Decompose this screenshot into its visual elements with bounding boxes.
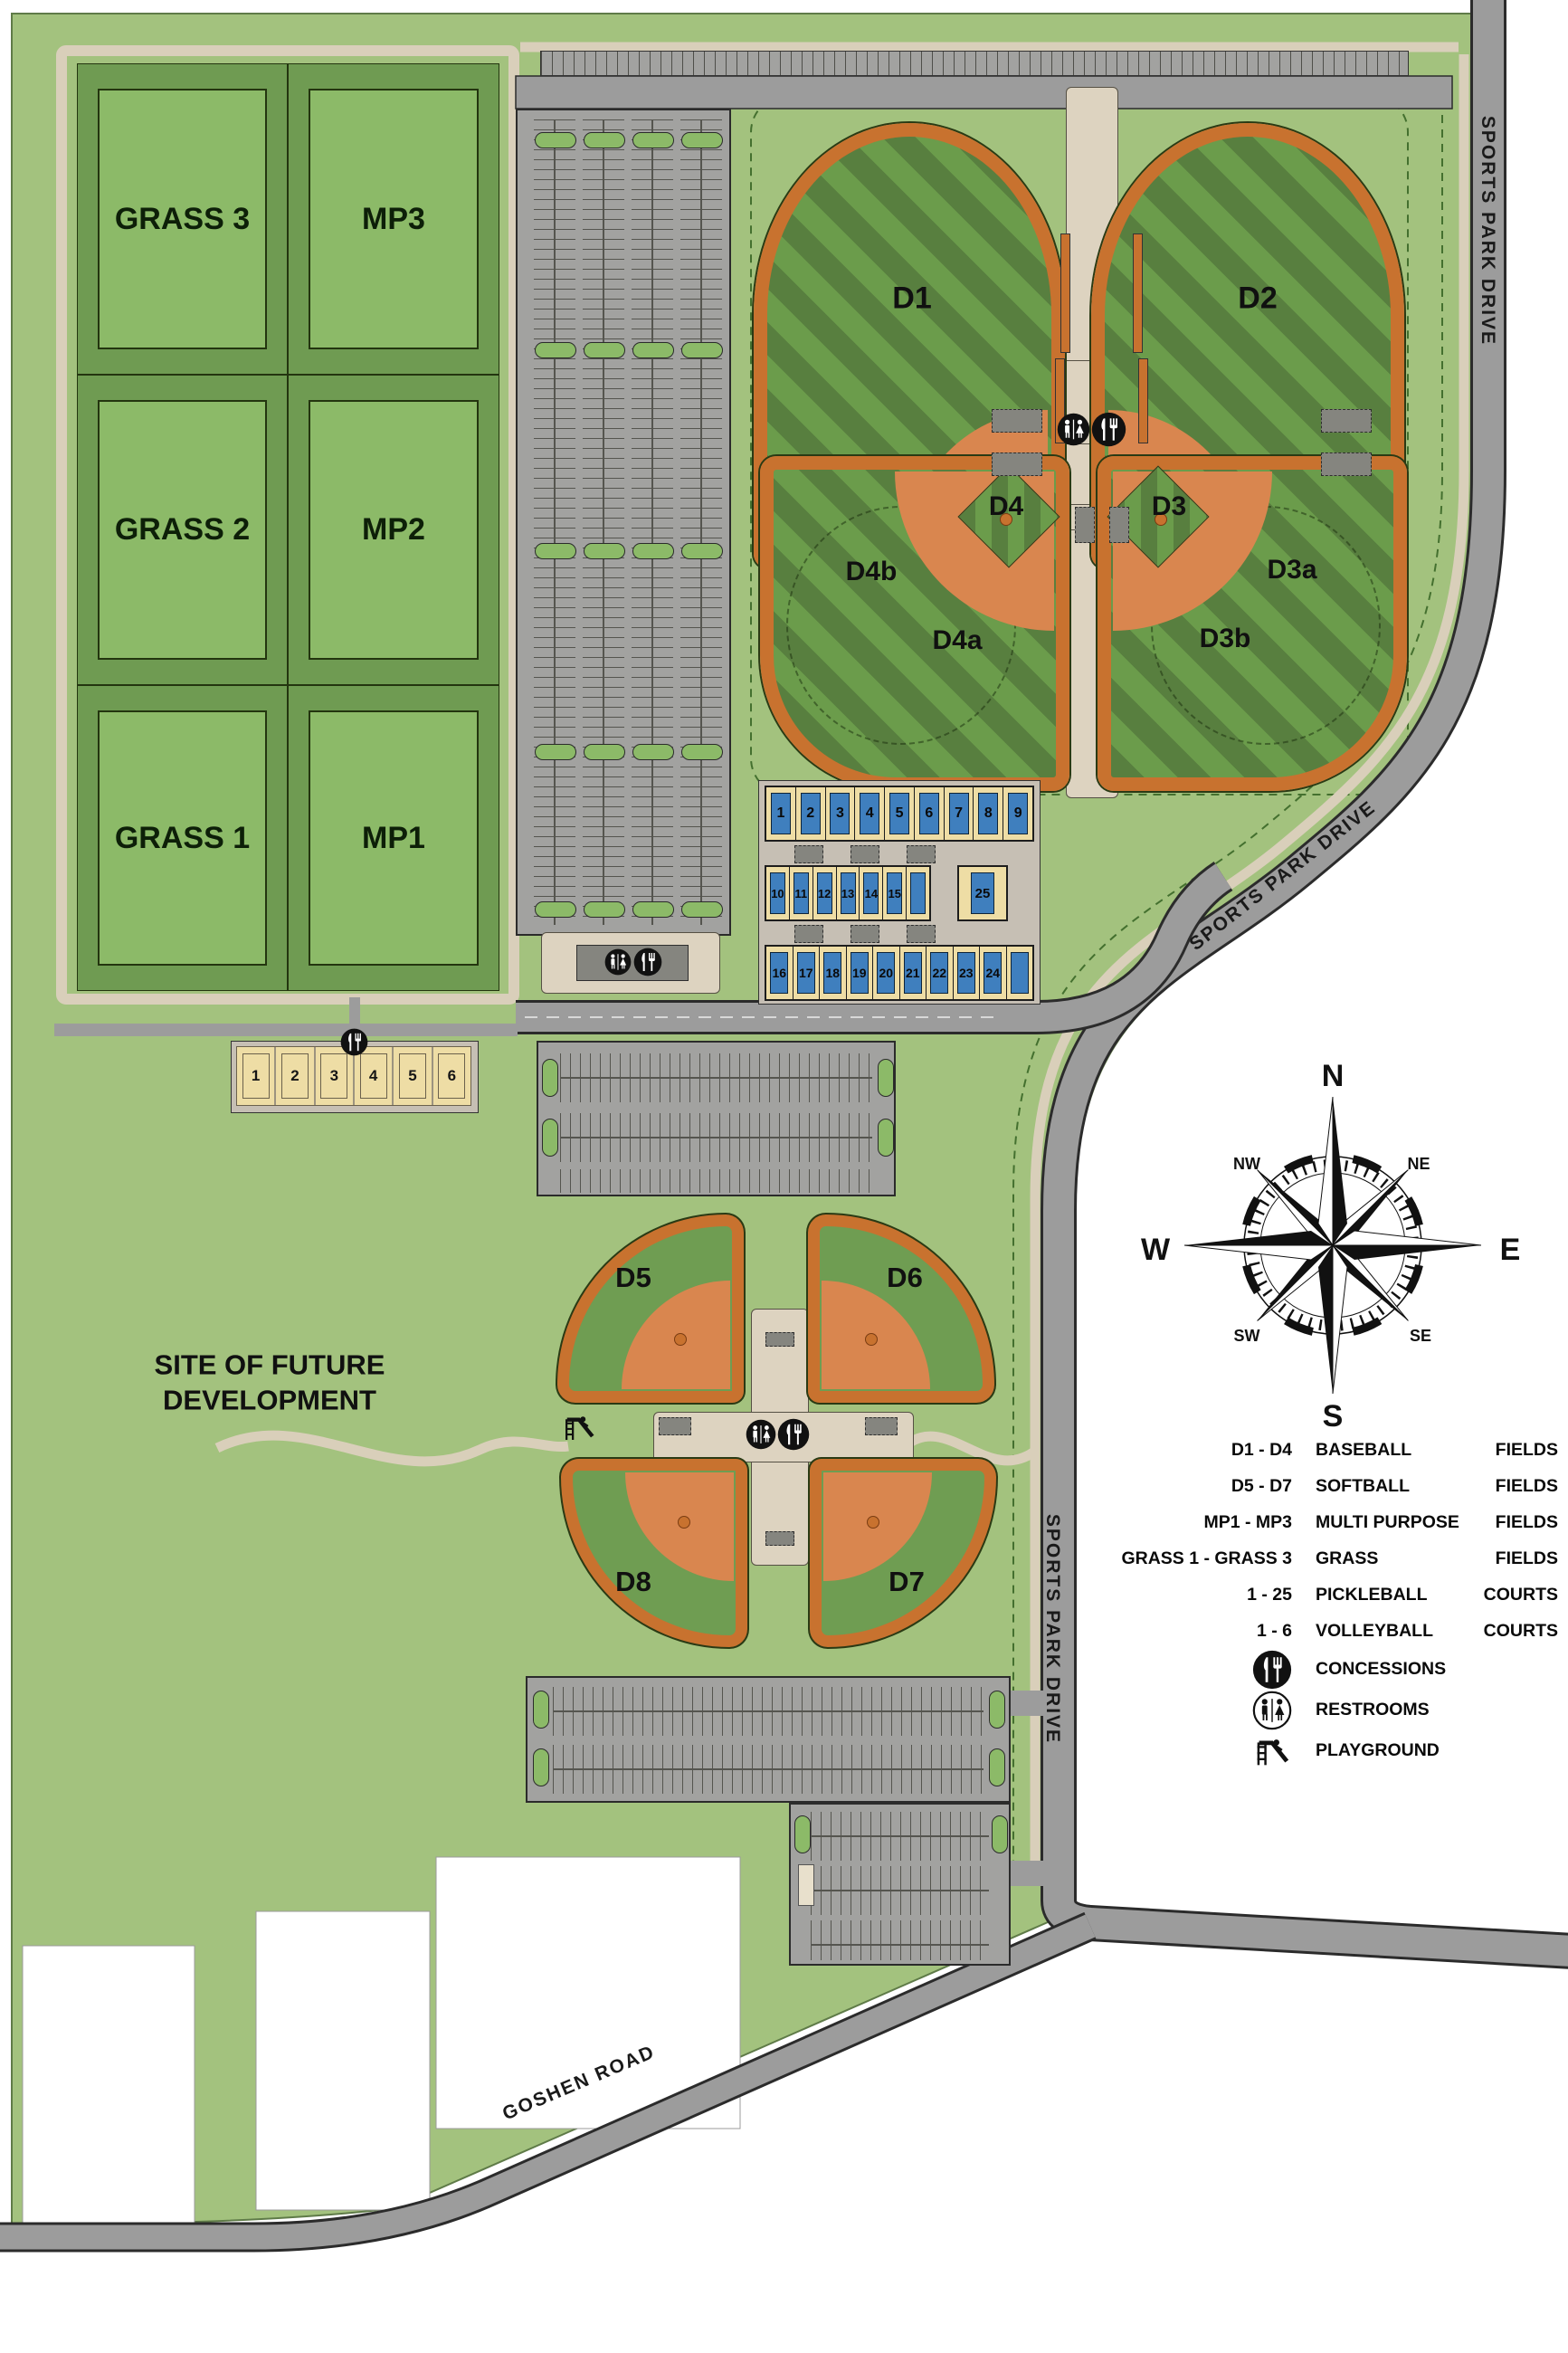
legend-type: FIELDS [1496, 1476, 1558, 1497]
baseball-d4a-label: D4a [932, 625, 982, 656]
restrooms-icon [1057, 413, 1090, 446]
concessions-icon [1252, 1650, 1292, 1690]
baseball-d3-label: D3 [1152, 491, 1186, 522]
parking-stalls [560, 1113, 872, 1162]
baseball-d3a-label: D3a [1267, 555, 1316, 586]
pickleball-court: 3 [826, 787, 856, 840]
d7-infield [823, 1472, 932, 1581]
field-grass1-label: GRASS 1 [98, 710, 267, 966]
compass-cardinal-points [1184, 1097, 1481, 1394]
pickleball-court: 21 [900, 947, 927, 999]
legend-type: FIELDS [1496, 1512, 1558, 1533]
pickleball-court [907, 867, 929, 919]
pickleball-court: 10 [766, 867, 790, 919]
pickleball-row-3: 16 17 18 19 20 21 22 23 24 [765, 945, 1034, 1001]
parking-stalls [583, 119, 624, 925]
pickleball-court: 11 [790, 867, 813, 919]
legend-code: 1 - 25 [1095, 1585, 1292, 1605]
legend-row-multipurpose: MP1 - MP3 MULTI PURPOSE FIELDS [1095, 1504, 1558, 1540]
field-mp2-label: MP2 [309, 400, 479, 660]
legend-code: 1 - 6 [1095, 1621, 1292, 1642]
legend-label: VOLLEYBALL [1316, 1621, 1433, 1642]
road-label-sports-park-drive-top: SPORTS PARK DRIVE [1478, 116, 1498, 346]
legend-label: GRASS [1316, 1548, 1378, 1569]
future-development-label: SITE OF FUTURE DEVELOPMENT [89, 1348, 451, 1418]
restrooms-icon [604, 948, 632, 976]
legend-row-playground: PLAYGROUND [1095, 1730, 1558, 1771]
south-parking-lot-east [789, 1803, 1011, 1966]
pickleball-court: 13 [837, 867, 860, 919]
legend-type: FIELDS [1496, 1548, 1558, 1569]
parking-stalls [811, 1920, 989, 1960]
compass-ne-label: NE [1407, 1155, 1430, 1173]
legend-row-softball: D5 - D7 SOFTBALL FIELDS [1095, 1468, 1558, 1504]
baseball-d4-label: D4 [989, 491, 1023, 522]
legend-type: FIELDS [1496, 1440, 1558, 1461]
building [576, 945, 689, 981]
legend-code: MP1 - MP3 [1095, 1512, 1292, 1533]
pickleball-row-2: 10 11 12 13 14 15 [765, 865, 931, 921]
main-parking-lot [516, 109, 731, 936]
top-parking-row [540, 51, 1409, 76]
pickleball-court: 12 [813, 867, 837, 919]
parking-stalls [811, 1812, 989, 1861]
pickleball-court: 4 [855, 787, 885, 840]
pickleball-court: 7 [945, 787, 974, 840]
baseball-d4b-label: D4b [846, 557, 898, 587]
parking-stalls [534, 119, 575, 925]
pickleball-court: 23 [954, 947, 981, 999]
legend-code: GRASS 1 - GRASS 3 [1095, 1548, 1292, 1569]
concessions-icon [777, 1418, 810, 1451]
south-parking-lot [526, 1676, 1011, 1803]
parking-stalls [632, 119, 673, 925]
middle-parking-lot [537, 1041, 896, 1196]
pickleball-court [1007, 947, 1033, 999]
parking-stalls [553, 1687, 984, 1736]
pickleball-court: 16 [766, 947, 794, 999]
field-mp1-label: MP1 [309, 710, 479, 966]
parking-stalls [811, 1866, 989, 1915]
pickleball-court: 15 [883, 867, 907, 919]
playground-icon [1250, 1730, 1292, 1772]
field-mp1: MP1 [288, 685, 499, 991]
legend-row-volleyball: 1 - 6 VOLLEYBALL COURTS [1095, 1613, 1558, 1649]
pickleball-court: 18 [820, 947, 847, 999]
pickleball-court: 5 [885, 787, 915, 840]
legend-row-restrooms: RESTROOMS [1095, 1690, 1558, 1730]
softball-d8-label: D8 [615, 1566, 651, 1598]
compass-rose: N S E W NE NW SE SW [1138, 1055, 1527, 1435]
parking-stalls [680, 119, 722, 925]
compass-n-label: N [1322, 1059, 1345, 1093]
legend-label: PLAYGROUND [1316, 1740, 1440, 1761]
legend-code: D1 - D4 [1095, 1440, 1292, 1461]
pickleball-court: 14 [860, 867, 883, 919]
legend-label: BASEBALL [1316, 1440, 1411, 1461]
volleyball-court: 2 [276, 1047, 315, 1105]
legend-label: MULTI PURPOSE [1316, 1512, 1459, 1533]
road-label-sports-park-drive-bottom: SPORTS PARK DRIVE [1042, 1514, 1063, 1744]
pickleball-court: 1 [766, 787, 796, 840]
pickleball-court-25-block: 25 [957, 865, 1008, 921]
compass-w-label: W [1141, 1233, 1171, 1267]
softball-d6-label: D6 [887, 1262, 923, 1294]
pickleball-court: 24 [980, 947, 1007, 999]
pickleball-court: 8 [974, 787, 1003, 840]
legend-type: COURTS [1484, 1621, 1558, 1642]
volleyball-court: 1 [237, 1047, 276, 1105]
legend-label: SOFTBALL [1316, 1476, 1410, 1497]
pickleball-court: 9 [1003, 787, 1032, 840]
baseball-d2-label: D2 [1238, 281, 1277, 317]
volleyball-court: 6 [433, 1047, 470, 1105]
field-grass2: GRASS 2 [77, 375, 288, 685]
field-mp2: MP2 [288, 375, 499, 685]
legend-row-grass: GRASS 1 - GRASS 3 GRASS FIELDS [1095, 1540, 1558, 1577]
pickleball-court: 25 [959, 867, 1006, 919]
pickleball-row-1: 1 2 3 4 5 6 7 8 9 [765, 786, 1034, 842]
legend: D1 - D4 BASEBALL FIELDS D5 - D7 SOFTBALL… [1095, 1432, 1558, 1771]
parking-stalls [560, 1169, 872, 1193]
pickleball-court: 20 [873, 947, 900, 999]
pickleball-court: 22 [927, 947, 954, 999]
field-grass3-label: GRASS 3 [98, 89, 267, 349]
legend-row-pickleball: 1 - 25 PICKLEBALL COURTS [1095, 1577, 1558, 1613]
baseball-field-d3-complex [1098, 456, 1407, 791]
compass-s-label: S [1323, 1399, 1344, 1434]
pickleball-court: 6 [915, 787, 945, 840]
legend-code: D5 - D7 [1095, 1476, 1292, 1497]
legend-label: CONCESSIONS [1316, 1659, 1446, 1680]
compass-sw-label: SW [1234, 1327, 1260, 1345]
concessions-icon [340, 1028, 368, 1056]
softball-d5-label: D5 [615, 1262, 651, 1294]
field-grass1: GRASS 1 [77, 685, 288, 991]
softball-d7-label: D7 [889, 1566, 925, 1598]
legend-label: PICKLEBALL [1316, 1585, 1428, 1605]
restrooms-icon [746, 1419, 776, 1450]
legend-row-concessions: CONCESSIONS [1095, 1649, 1558, 1690]
site-plan-canvas: SPORTS PARK DRIVE SPORTS PARK DRIVE SPOR… [0, 0, 1568, 2353]
concessions-icon [1091, 412, 1126, 447]
field-mp3: MP3 [288, 63, 499, 375]
pickleball-court: 17 [794, 947, 821, 999]
concessions-icon [633, 948, 662, 976]
pickleball-court: 19 [847, 947, 874, 999]
baseball-d3b-label: D3b [1200, 624, 1251, 654]
d8-infield [625, 1472, 734, 1581]
small-building [798, 1864, 814, 1906]
legend-label: RESTROOMS [1316, 1700, 1430, 1720]
parking-stalls [560, 1053, 872, 1102]
playground-icon [559, 1408, 597, 1446]
d5-infield [622, 1281, 730, 1389]
field-mp3-label: MP3 [309, 89, 479, 349]
pickleball-court: 2 [796, 787, 826, 840]
d6-infield [822, 1281, 930, 1389]
legend-row-baseball: D1 - D4 BASEBALL FIELDS [1095, 1432, 1558, 1468]
compass-e-label: E [1500, 1233, 1521, 1267]
field-grass2-label: GRASS 2 [98, 400, 267, 660]
volleyball-court: 5 [394, 1047, 432, 1105]
baseball-d1-label: D1 [892, 281, 931, 317]
compass-se-label: SE [1410, 1327, 1431, 1345]
restrooms-icon [1252, 1691, 1292, 1730]
legend-type: COURTS [1484, 1585, 1558, 1605]
compass-nw-label: NW [1233, 1155, 1260, 1173]
parking-stalls [553, 1745, 984, 1794]
field-grass3: GRASS 3 [77, 63, 288, 375]
